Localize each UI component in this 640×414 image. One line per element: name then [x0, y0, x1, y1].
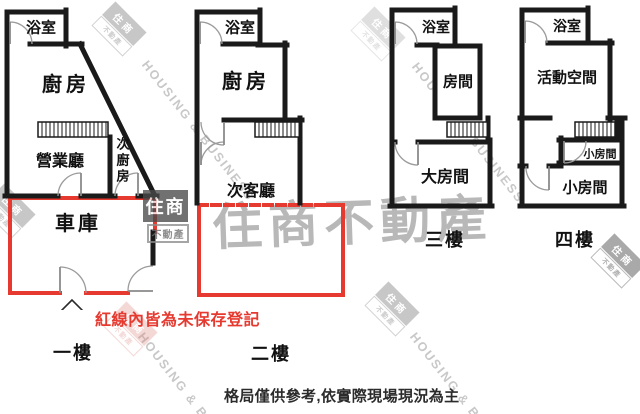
logo-sub-text: 不動產: [147, 224, 189, 243]
floorplan-3f: [385, 0, 500, 260]
room-label-kitchen-1f: 廚房: [42, 75, 90, 95]
stairs-3f: [447, 122, 488, 137]
unregistered-red-boundary-2f: [199, 205, 343, 295]
walls-2f: [197, 10, 302, 203]
room-label-bathroom-4f: 浴室: [553, 19, 581, 33]
room-label-big-room-3f: 大房間: [421, 170, 469, 186]
floor-caption-2f: 二樓: [251, 345, 291, 363]
floorplan-4f: [515, 0, 640, 260]
walls-4f: [520, 8, 625, 206]
room-label-business-hall-1f: 營業廳: [36, 154, 84, 170]
room-label-bathroom-1f: 浴室: [26, 21, 56, 36]
room-label-small-room-upper-4f: 小房間: [584, 150, 617, 161]
floor-caption-3f: 三樓: [425, 231, 465, 249]
floor-caption-1f: 一樓: [53, 344, 93, 362]
room-label-second-living-2f: 次客廳: [227, 184, 275, 200]
floorplan-2f: [190, 0, 355, 310]
room-label-activity-space-4f: 活動空間: [537, 71, 597, 86]
watermark-logo-stamp: 住商 不動產: [143, 190, 189, 243]
doors-2f: [200, 22, 224, 165]
floor-caption-4f: 四樓: [555, 231, 595, 249]
room-label-room-3f: 房間: [443, 75, 473, 90]
room-label-small-room-lower-4f: 小房間: [562, 181, 607, 196]
room-label-sub-kitchen-1f: 次廚房: [116, 137, 129, 185]
stairs-1f: [38, 122, 108, 137]
red-registration-note: 紅線內皆為未保存登記: [95, 306, 260, 330]
entrance-arrow: [57, 300, 87, 310]
disclaimer-note: 格局僅供參考,依實際現場現況為主: [224, 385, 460, 406]
stairs-4f: [575, 122, 615, 137]
stairs-2f: [255, 122, 300, 137]
room-label-bathroom-2f: 浴室: [225, 21, 255, 36]
logo-brand-text: 住商: [143, 190, 188, 222]
room-label-garage-1f: 車庫: [55, 214, 101, 234]
room-label-kitchen-2f: 廚房: [222, 72, 270, 92]
watermark-stamp-4: 住商 不動產: [364, 281, 419, 336]
floorplan-image: 住商不動產 HOUSING & BUSINESS HOUSING & BUSIN…: [0, 0, 640, 414]
room-label-bathroom-3f: 浴室: [422, 20, 450, 34]
